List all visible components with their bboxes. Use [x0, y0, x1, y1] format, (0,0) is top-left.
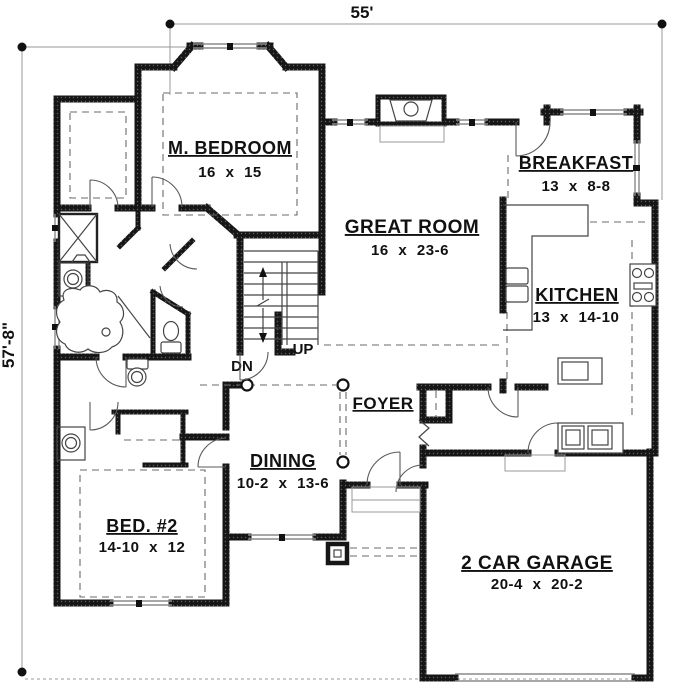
wall-break-mark — [419, 420, 429, 446]
room-size-dining: 10-2 x 13-6 — [237, 475, 329, 492]
stairs-up-label: UP — [293, 341, 314, 358]
round-column — [242, 380, 253, 391]
room-label-foyer: FOYER — [352, 394, 413, 413]
fireplace — [378, 97, 444, 142]
toilet-tank — [161, 342, 181, 353]
hearth — [380, 126, 444, 142]
dimension-top-label: 55' — [351, 3, 374, 22]
dimension-left-label: 57'-8" — [0, 322, 18, 368]
room-label-dining: DINING — [250, 451, 316, 471]
vanity-sink — [62, 434, 80, 452]
front-stoop — [352, 487, 420, 512]
room-size-breakfast: 13 x 8-8 — [541, 178, 610, 195]
vanity-sink — [64, 270, 82, 288]
round-column — [338, 380, 349, 391]
floor-plan-drawing: 55' 57'-8" DN UP — [0, 0, 675, 692]
room-label-great-room: GREAT ROOM — [345, 217, 479, 238]
kitchen-sink-bowl — [506, 286, 528, 302]
room-size-bed2: 14-10 x 12 — [99, 539, 186, 556]
toilet-bowl — [164, 322, 179, 341]
dimension-dot — [166, 20, 175, 29]
doors — [58, 122, 558, 492]
dimension-dot — [18, 43, 27, 52]
room-label-garage: 2 CAR GARAGE — [461, 553, 613, 574]
floor-plan-page: 55' 57'-8" DN UP — [0, 0, 675, 692]
fireplace-box — [378, 97, 444, 124]
room-label-master-bedroom: M. BEDROOM — [168, 138, 292, 158]
door-swings — [58, 122, 558, 492]
room-label-kitchen: KITCHEN — [535, 285, 619, 305]
room-label-breakfast: BREAKFAST — [519, 153, 634, 173]
kitchen-fixtures — [503, 205, 656, 471]
room-size-great-room: 16 x 23-6 — [371, 242, 449, 259]
dimension-dot — [658, 20, 667, 29]
room-size-garage: 20-4 x 20-2 — [491, 576, 583, 593]
garage-step — [505, 455, 565, 471]
dimension-dot — [18, 668, 27, 677]
room-size-master-bedroom: 16 x 15 — [198, 164, 262, 181]
stair-direction-line — [257, 270, 269, 340]
room-label-bed2: BED. #2 — [106, 516, 178, 536]
garden-tub — [57, 286, 124, 353]
stairs-down-label: DN — [231, 358, 253, 375]
room-size-kitchen: 13 x 14-10 — [533, 309, 620, 326]
square-porch-column — [328, 544, 347, 563]
round-column — [338, 457, 349, 468]
toilet-bowl — [128, 368, 146, 386]
kitchen-sink-bowl — [506, 268, 528, 284]
